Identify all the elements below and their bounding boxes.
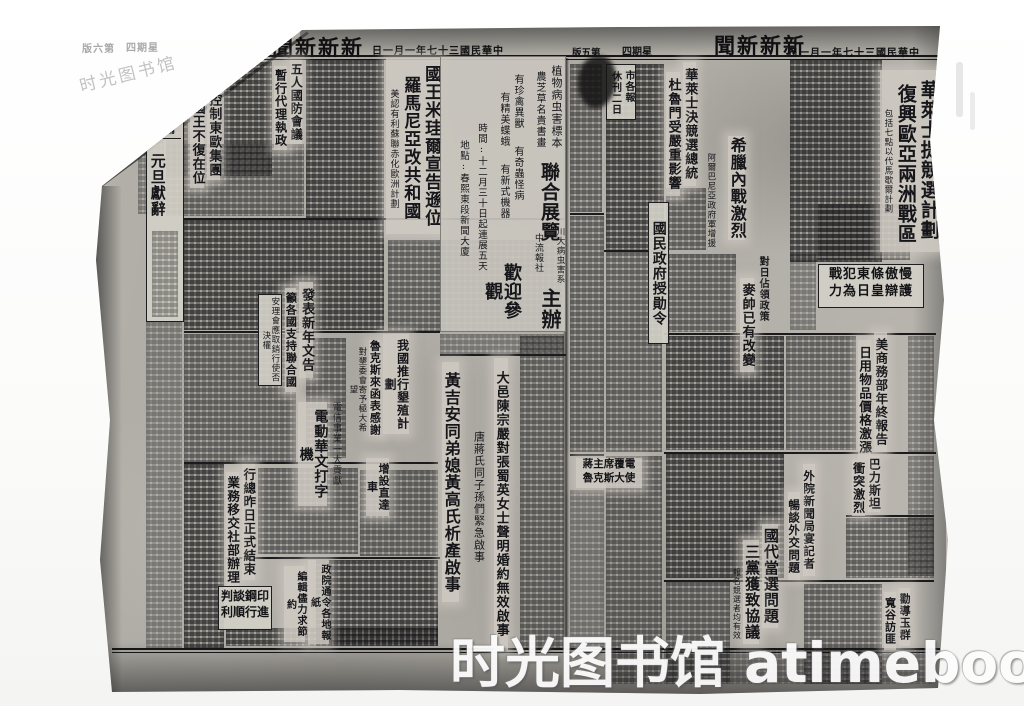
right-page-weekday-label: 四期星 [622,43,652,58]
left-page-masthead-date: 日一月一年七十三國民華中 [372,42,504,57]
headline-line: 對日佔領政策 [757,254,768,324]
brief-line: 蔣主席覆電 [576,458,642,472]
headline-foreign-office-banquet: 外院新聞局宴記者 暢談外交問題 [788,464,815,580]
library-footer-watermark: 时光图书馆 atimebook.com [450,618,1024,698]
ad-text-column: 植物病虫害標本 [550,58,562,156]
headline-line: 編輯儘力求節約 [284,566,305,642]
headline-palestine-conflict: 巴力斯坦 衝突激烈 [852,456,880,516]
headline-line: 發表新年文告 [299,282,313,378]
section-rule [226,557,440,559]
headline-defense-council: 五人國防會議 暫行代理執政 [274,60,302,150]
section-rule [664,580,934,582]
section-rule [570,213,604,215]
headline-line: 暢談外交問題 [788,492,800,580]
print-texture-block [786,336,856,450]
headline-line: 五人國防會議 [290,60,303,144]
right-page-masthead-date: 日一月一年七十三國民華中 [788,44,920,59]
headline-line: 外院新聞局宴記者 [803,464,815,576]
headline-line: 華萊士決競選總統 [683,62,697,186]
print-texture-block [440,334,564,354]
headline-wallace-runs-president: 華萊士決競選總統 杜魯門受嚴重影響 [666,62,696,196]
headline-line: 國王米珪爾宣告遜位 [421,60,439,232]
notice-tang-urgent: 唐蔣氏同子孫們緊急啟事 [473,360,485,634]
headline-line: 戰犯東條傲慢 [821,267,921,284]
headline-inset-box: 安理會應取銷行使否決權 [258,294,282,386]
headline-greek-civil-war: 希臘內戰激烈 [728,136,745,240]
editorial-tag: 社論 [149,123,181,139]
headline-cnrra-closure: 行總昨日正式結束 業務移交社部辦理 [226,464,255,588]
ad-place-line: 地點:春熙東段新聞大廈 [458,100,468,296]
headline-line: 巴力斯坦 [868,456,881,512]
editorial-title: 元旦獻辭 [149,143,165,227]
newspaper-sheet: 聞新新新 日一月一年七十三國民華中 版五第 四期星 聞新新新 日一月一年七十三國… [0,0,1024,706]
print-texture-block [152,231,178,317]
print-texture-block [226,628,438,646]
section-rule [570,454,604,456]
brief-line: 魯克斯大使 [576,472,642,486]
headline-soviet-bloc: 蘇聯控制東歐集團 五國國王不復在位 [190,62,220,188]
left-page-masthead-title: 聞新新新 [272,32,364,62]
headline-subtitle: 對墾委會寄予極大希望 [348,344,366,436]
headline-express-route: 增設直達車 [366,458,389,516]
scanned-newspaper-backdrop: 版六第 四期星 聞新新新 日一月一年七十三國民華中 版五第 四期星 聞新新新 日… [0,0,1024,706]
print-texture-block [166,144,304,216]
headline-japan-occupation-policy: 對日佔領政策 麥帥已有改變 [740,254,767,372]
print-texture-block [666,188,706,250]
notice-dayi-engagement: 大邑陳宗嚴對張蜀英女士聲明婚約無效啟事 [494,358,508,650]
headline-line: 業務移交社部辦理 [226,472,239,588]
headline-government-medal-order: 國民政府授勛令 [648,202,669,344]
headline-line: 暫行代理執政 [274,66,287,150]
headline-line: 日用物品價格激漲 [858,340,871,460]
headline-line: 魯克斯來函表感謝 [369,340,381,436]
print-texture-block [570,216,604,452]
ad-host-label: 主辦 [539,288,560,330]
brief-line: 判談鋼印 [221,589,269,605]
scan-streak [956,62,963,117]
headline-subtitle: 包括七點以代馬歇爾計劃 [883,87,892,235]
brief-negotiation-box: 判談鋼印 利順行進 [218,586,272,630]
exhibition-ad: 植物病虫害標本 農芝草名貴書畫 聯合展覽 有珍禽異獸 有精美蝶蛾 有奇蟲怪病 有… [440,56,566,332]
headline-line: 力為日皇辯護 [821,284,921,301]
ad-feature-line: 有珍禽異獸 [512,68,523,134]
ad-feature-line: 有精美蝶蛾 [498,86,509,152]
chiang-telegram-box: 蔣主席覆電 魯克斯大使 [576,458,642,488]
ad-organizer: 川大病虫害系 [555,226,564,284]
headline-line: 衝突激烈 [852,460,865,516]
headline-greek-civil-war-subtitle: 阿爾巴尼亞政府軍增援 [706,152,715,248]
print-texture-block [520,336,564,648]
ad-organizer: 中流報社 [533,230,542,276]
headline-reclamation-plan: 我國推行墾殖計劃 魯克斯來函表感謝 對墾委會寄予極大希望 [348,334,409,436]
ad-feature-line: 有奇蟲怪病 [512,140,523,206]
section-rule [440,354,566,356]
headline-line: 蘇聯控制東歐集團 [207,62,221,180]
scan-streak [970,92,975,130]
editorial-box: 社論 元旦獻辭 [146,120,184,322]
library-corner-watermark: 时光图书馆 [76,48,179,96]
torn-left-edge [96,186,122,692]
headline-line: 杜魯門受嚴重影響 [666,72,680,196]
ghost-weekday-label: 四期星 [126,39,159,54]
section-rule [664,333,936,335]
headline-kicker: 電信事業一大貢獻 [330,402,340,486]
headline-line: 籲各國支持聯合國 [285,288,297,392]
headline-wallace-campaign-plan: 華萊士提競選計劃 復興歐亞兩洲戰區 包括七點以代馬歇爾計劃 [880,70,941,252]
brief-line: 市各報 [623,67,634,105]
headline-line: 五國國王不復在位 [190,70,204,188]
print-texture-block [908,336,934,452]
ad-text-column: 農芝草名貴書畫 [534,62,545,156]
print-texture-block [146,322,182,648]
print-texture-block [790,254,816,330]
print-texture-block [666,254,736,332]
headline-chinese-typewriter: 電信事業一大貢獻 電動華文打字機 [298,402,340,506]
print-texture-block [306,60,384,218]
headline-subtitle: 美認有利蘇聯赤化歐洲計劃 [388,74,397,224]
headline-new-year-message: 發表新年文告 籲各國支持聯合國 安理會應取銷行使否決權 [258,282,313,392]
headline-line: 麥帥已有改變 [740,278,754,372]
headline-line: 行總昨日正式結束 [242,464,255,580]
headline-line: 國代當選問題 [762,524,778,628]
headline-line: 美商務部年終報告 [874,332,887,452]
brief-line: 利順行進 [221,605,269,621]
headline-line: 復興歐亞兩洲戰區 [895,79,915,249]
headline-line: 政院通令各地報紙 [308,560,329,644]
headline-us-commerce-report: 美商務部年終報告 日用物品價格激漲 [858,332,887,460]
section-rule [664,452,936,454]
ad-headline-welcome: 歡迎參觀 [482,254,520,328]
headline-line: 電動華文打字機 [298,402,327,506]
headline-king-michael-abdication: 國王米珪爾宣告遜位 羅馬尼亞改共和國 美認有利蘇聯赤化歐洲計劃 [386,58,441,234]
ad-feature-line: 有新式機器 [498,158,509,224]
headline-press-economy-order: 政院通令各地報紙 編輯儘力求節約 [284,560,329,644]
notice-huang-property: 黃吉安同弟媳黃高氏析產啟事 [442,362,459,602]
headline-line: 羅馬尼亞改共和國 [400,68,418,228]
headline-line: 華萊士提競選計劃 [918,73,938,247]
headline-tojo-war-criminal: 戰犯東條傲慢 力為日皇辯護 [818,264,924,308]
ghost-edition-label: 版六第 [82,40,115,55]
headline-line: 我國推行墾殖計劃 [383,334,408,434]
